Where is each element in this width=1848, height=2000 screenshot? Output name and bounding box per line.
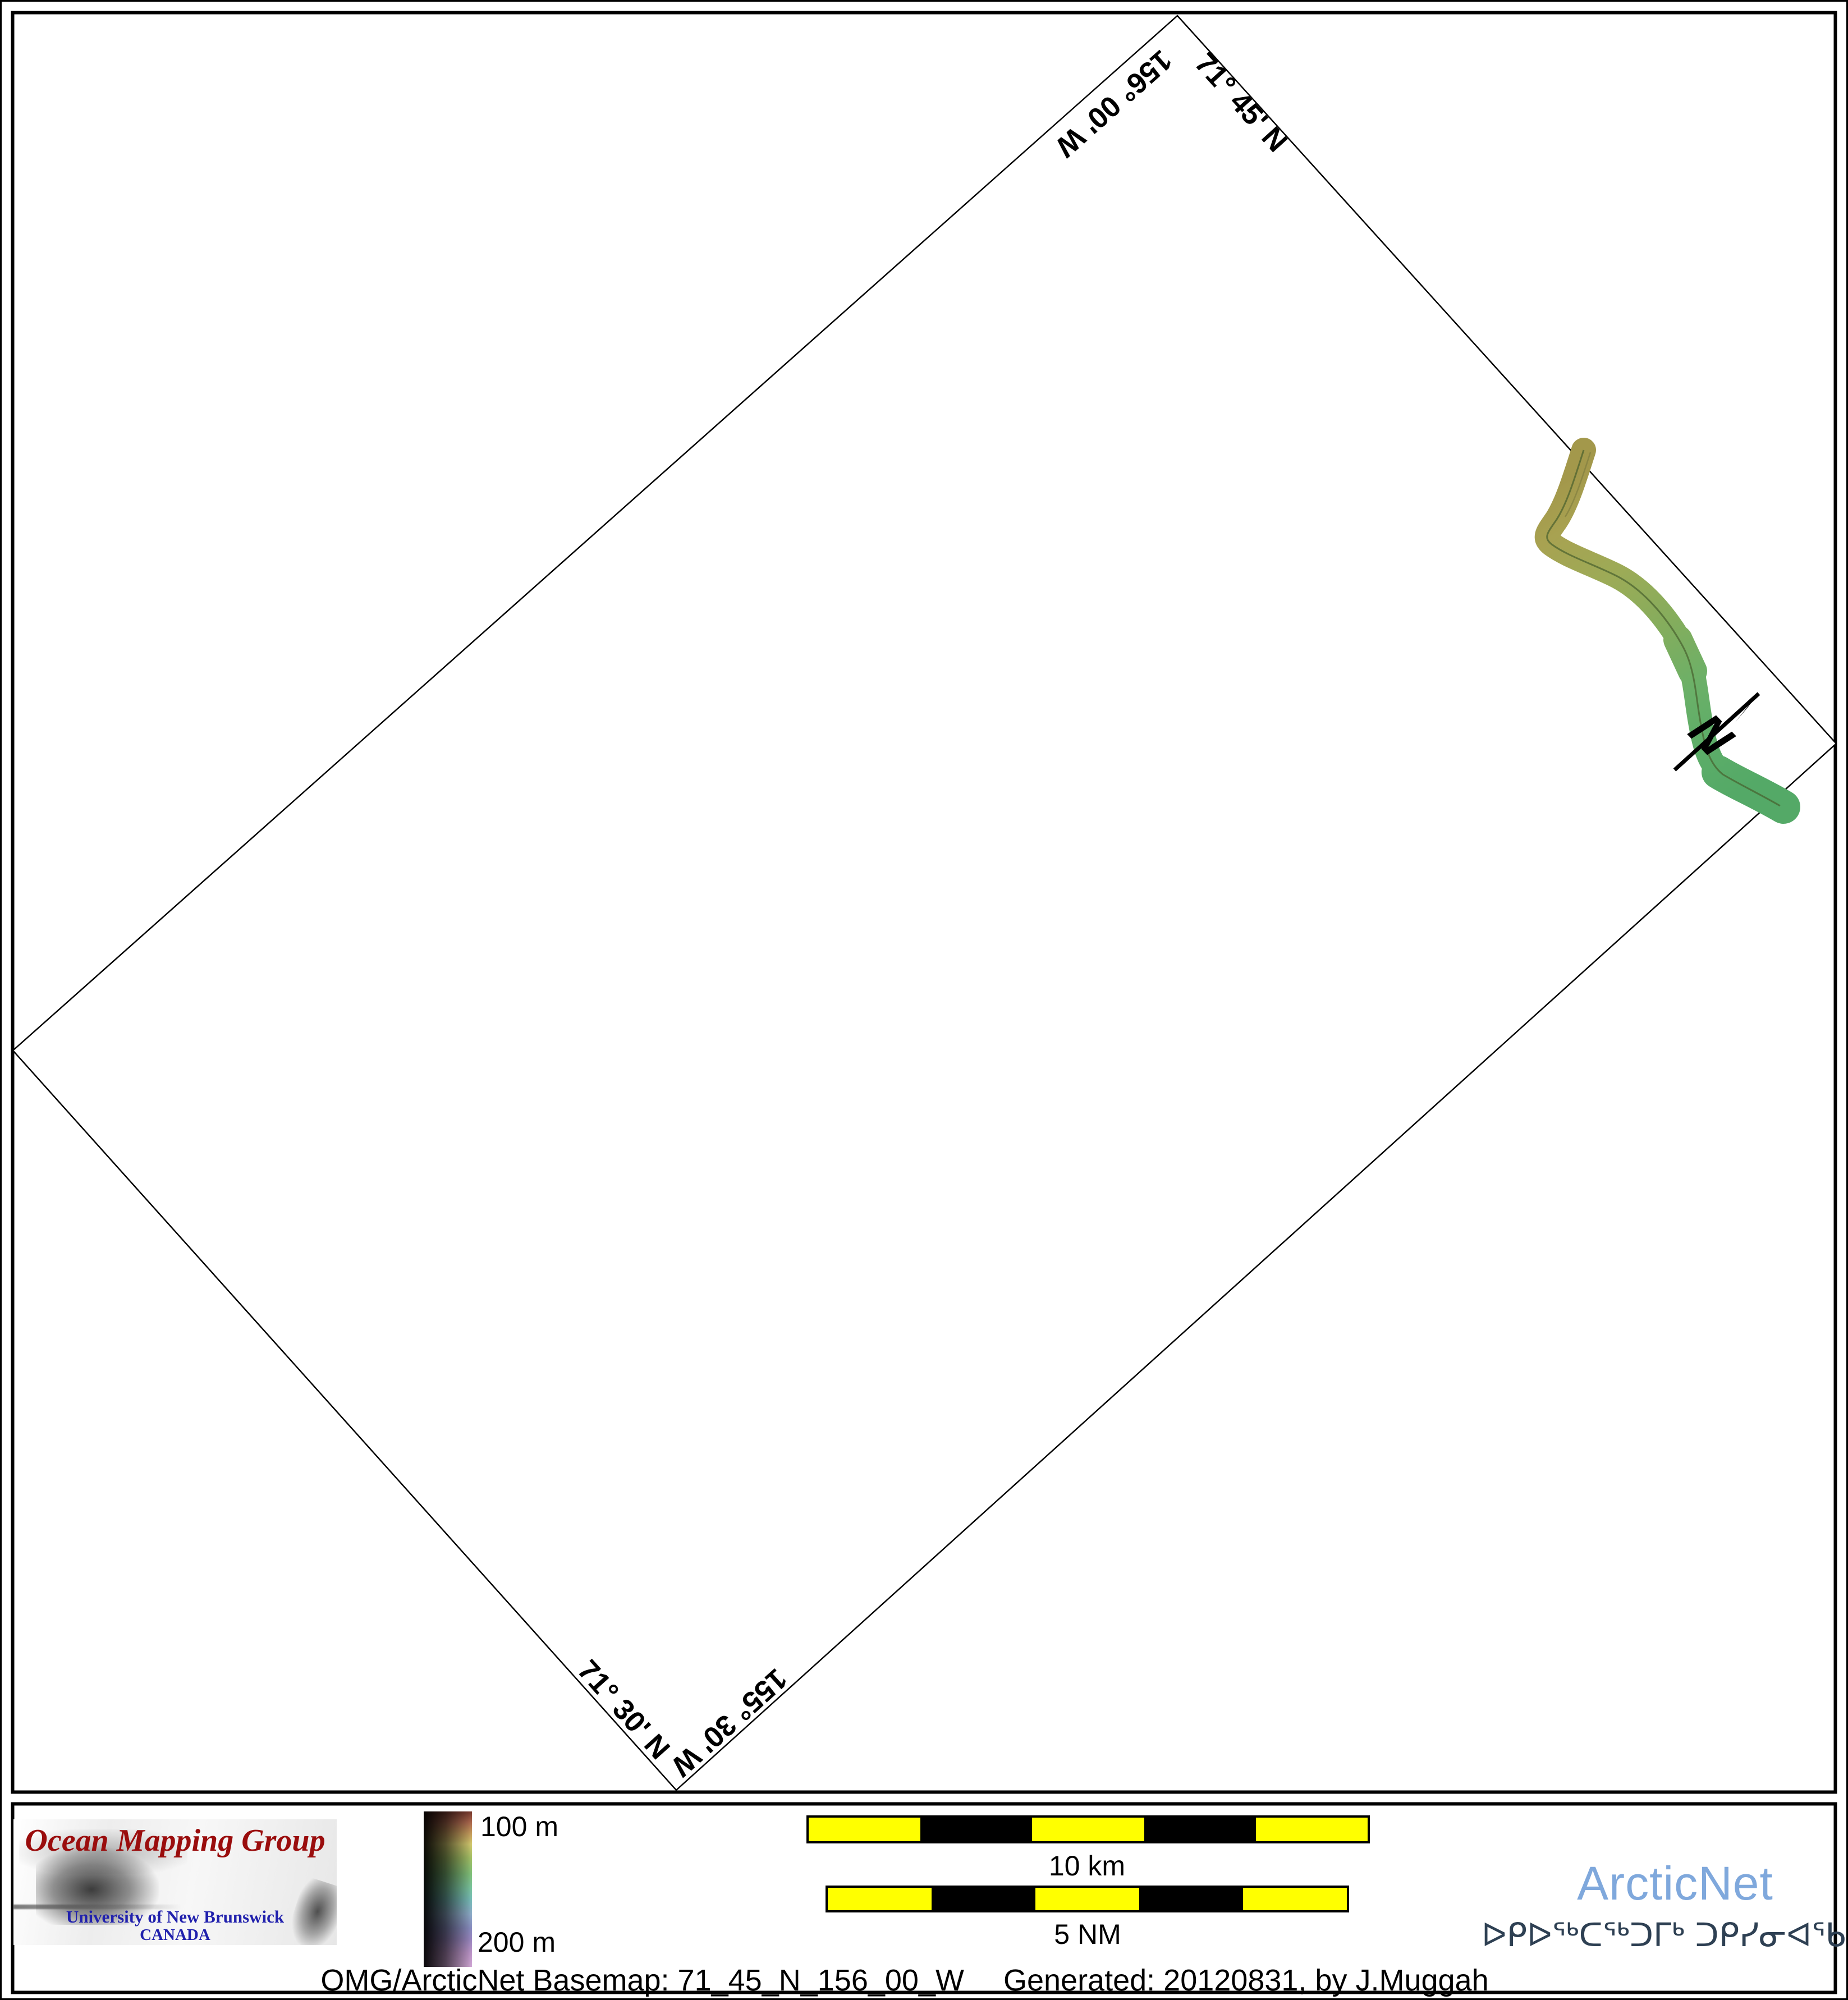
omg-logo-country: CANADA: [13, 1926, 337, 1944]
basemap-page: 156° 00' W 71° 45' N 71° 30' N 155° 30' …: [0, 0, 1848, 2000]
depth-colorbar: [424, 1811, 472, 1967]
basemap-caption: OMG/ArcticNet Basemap: 71_45_N_156_00_W …: [231, 1963, 1578, 1998]
omg-logo-university: University of New Brunswick: [13, 1907, 337, 1927]
caption-basemap-id: OMG/ArcticNet Basemap: 71_45_N_156_00_W: [320, 1963, 964, 1998]
scalebar-km-label: 10 km: [919, 1850, 1255, 1882]
colorbar-max-depth-label: 200 m: [478, 1926, 556, 1958]
scalebar-nm-label: 5 NM: [919, 1918, 1256, 1951]
map-canvas: 156° 00' W 71° 45' N 71° 30' N 155° 30' …: [0, 0, 1848, 2000]
scalebar-nautical-miles: [826, 1886, 1349, 1912]
scalebar-segment: [1144, 1818, 1256, 1841]
scalebar-segment: [920, 1818, 1032, 1841]
omg-logo: Ocean Mapping Group University of New Br…: [13, 1819, 337, 1945]
caption-generated-info: Generated: 20120831, by J.Muggah: [1003, 1963, 1489, 1998]
scalebar-segment: [1243, 1888, 1347, 1910]
scalebar-segment: [1032, 1818, 1144, 1841]
scalebar-segment: [1256, 1818, 1368, 1841]
arcticnet-logo-name: ArcticNet: [1482, 1859, 1848, 1908]
arcticnet-logo-syllabics: ᐅᑭᐅᖅᑕᖅᑐᒥᒃ ᑐᑭᓯᓂᐊᖃᑎᒌᑦ: [1482, 1916, 1848, 1954]
omg-logo-title: Ocean Mapping Group: [13, 1823, 337, 1859]
scalebar-segment: [809, 1818, 920, 1841]
map-sheet-diamond: [13, 16, 1836, 1790]
scalebar-segment: [1139, 1888, 1243, 1910]
colorbar-min-depth-label: 100 m: [480, 1810, 558, 1843]
scalebar-segment: [828, 1888, 932, 1910]
scalebar-kilometres: [806, 1815, 1370, 1843]
arcticnet-logo: ArcticNet ᐅᑭᐅᖅᑕᖅᑐᒥᒃ ᑐᑭᓯᓂᐊᖃᑎᒌᑦ: [1482, 1859, 1848, 1954]
scalebar-segment: [1035, 1888, 1139, 1910]
scalebar-segment: [932, 1888, 1035, 1910]
